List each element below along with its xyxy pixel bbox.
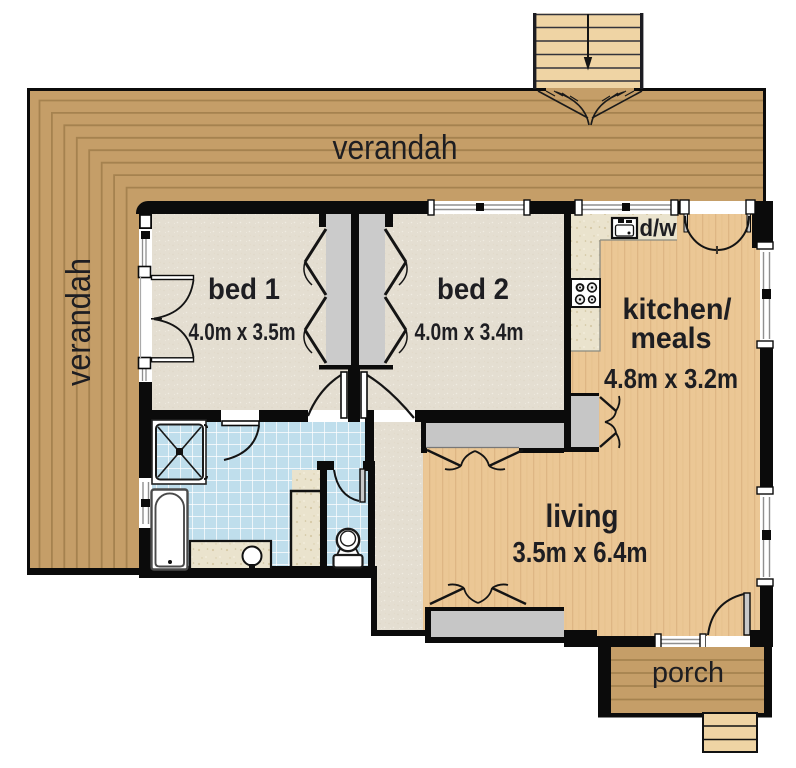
svg-text:3.5m x 6.4m: 3.5m x 6.4m — [513, 537, 648, 569]
svg-text:bed 1: bed 1 — [208, 273, 280, 306]
svg-text:bed 2: bed 2 — [437, 273, 509, 306]
svg-text:verandah: verandah — [333, 129, 458, 167]
svg-text:4.8m x 3.2m: 4.8m x 3.2m — [604, 363, 738, 394]
svg-text:living: living — [546, 498, 619, 534]
svg-text:meals: meals — [631, 322, 712, 355]
svg-text:porch: porch — [652, 657, 724, 689]
svg-text:4.0m x 3.4m: 4.0m x 3.4m — [415, 319, 524, 346]
svg-text:4.0m x 3.5m: 4.0m x 3.5m — [189, 319, 296, 346]
svg-text:d/w: d/w — [640, 215, 677, 242]
svg-text:verandah: verandah — [60, 258, 98, 386]
